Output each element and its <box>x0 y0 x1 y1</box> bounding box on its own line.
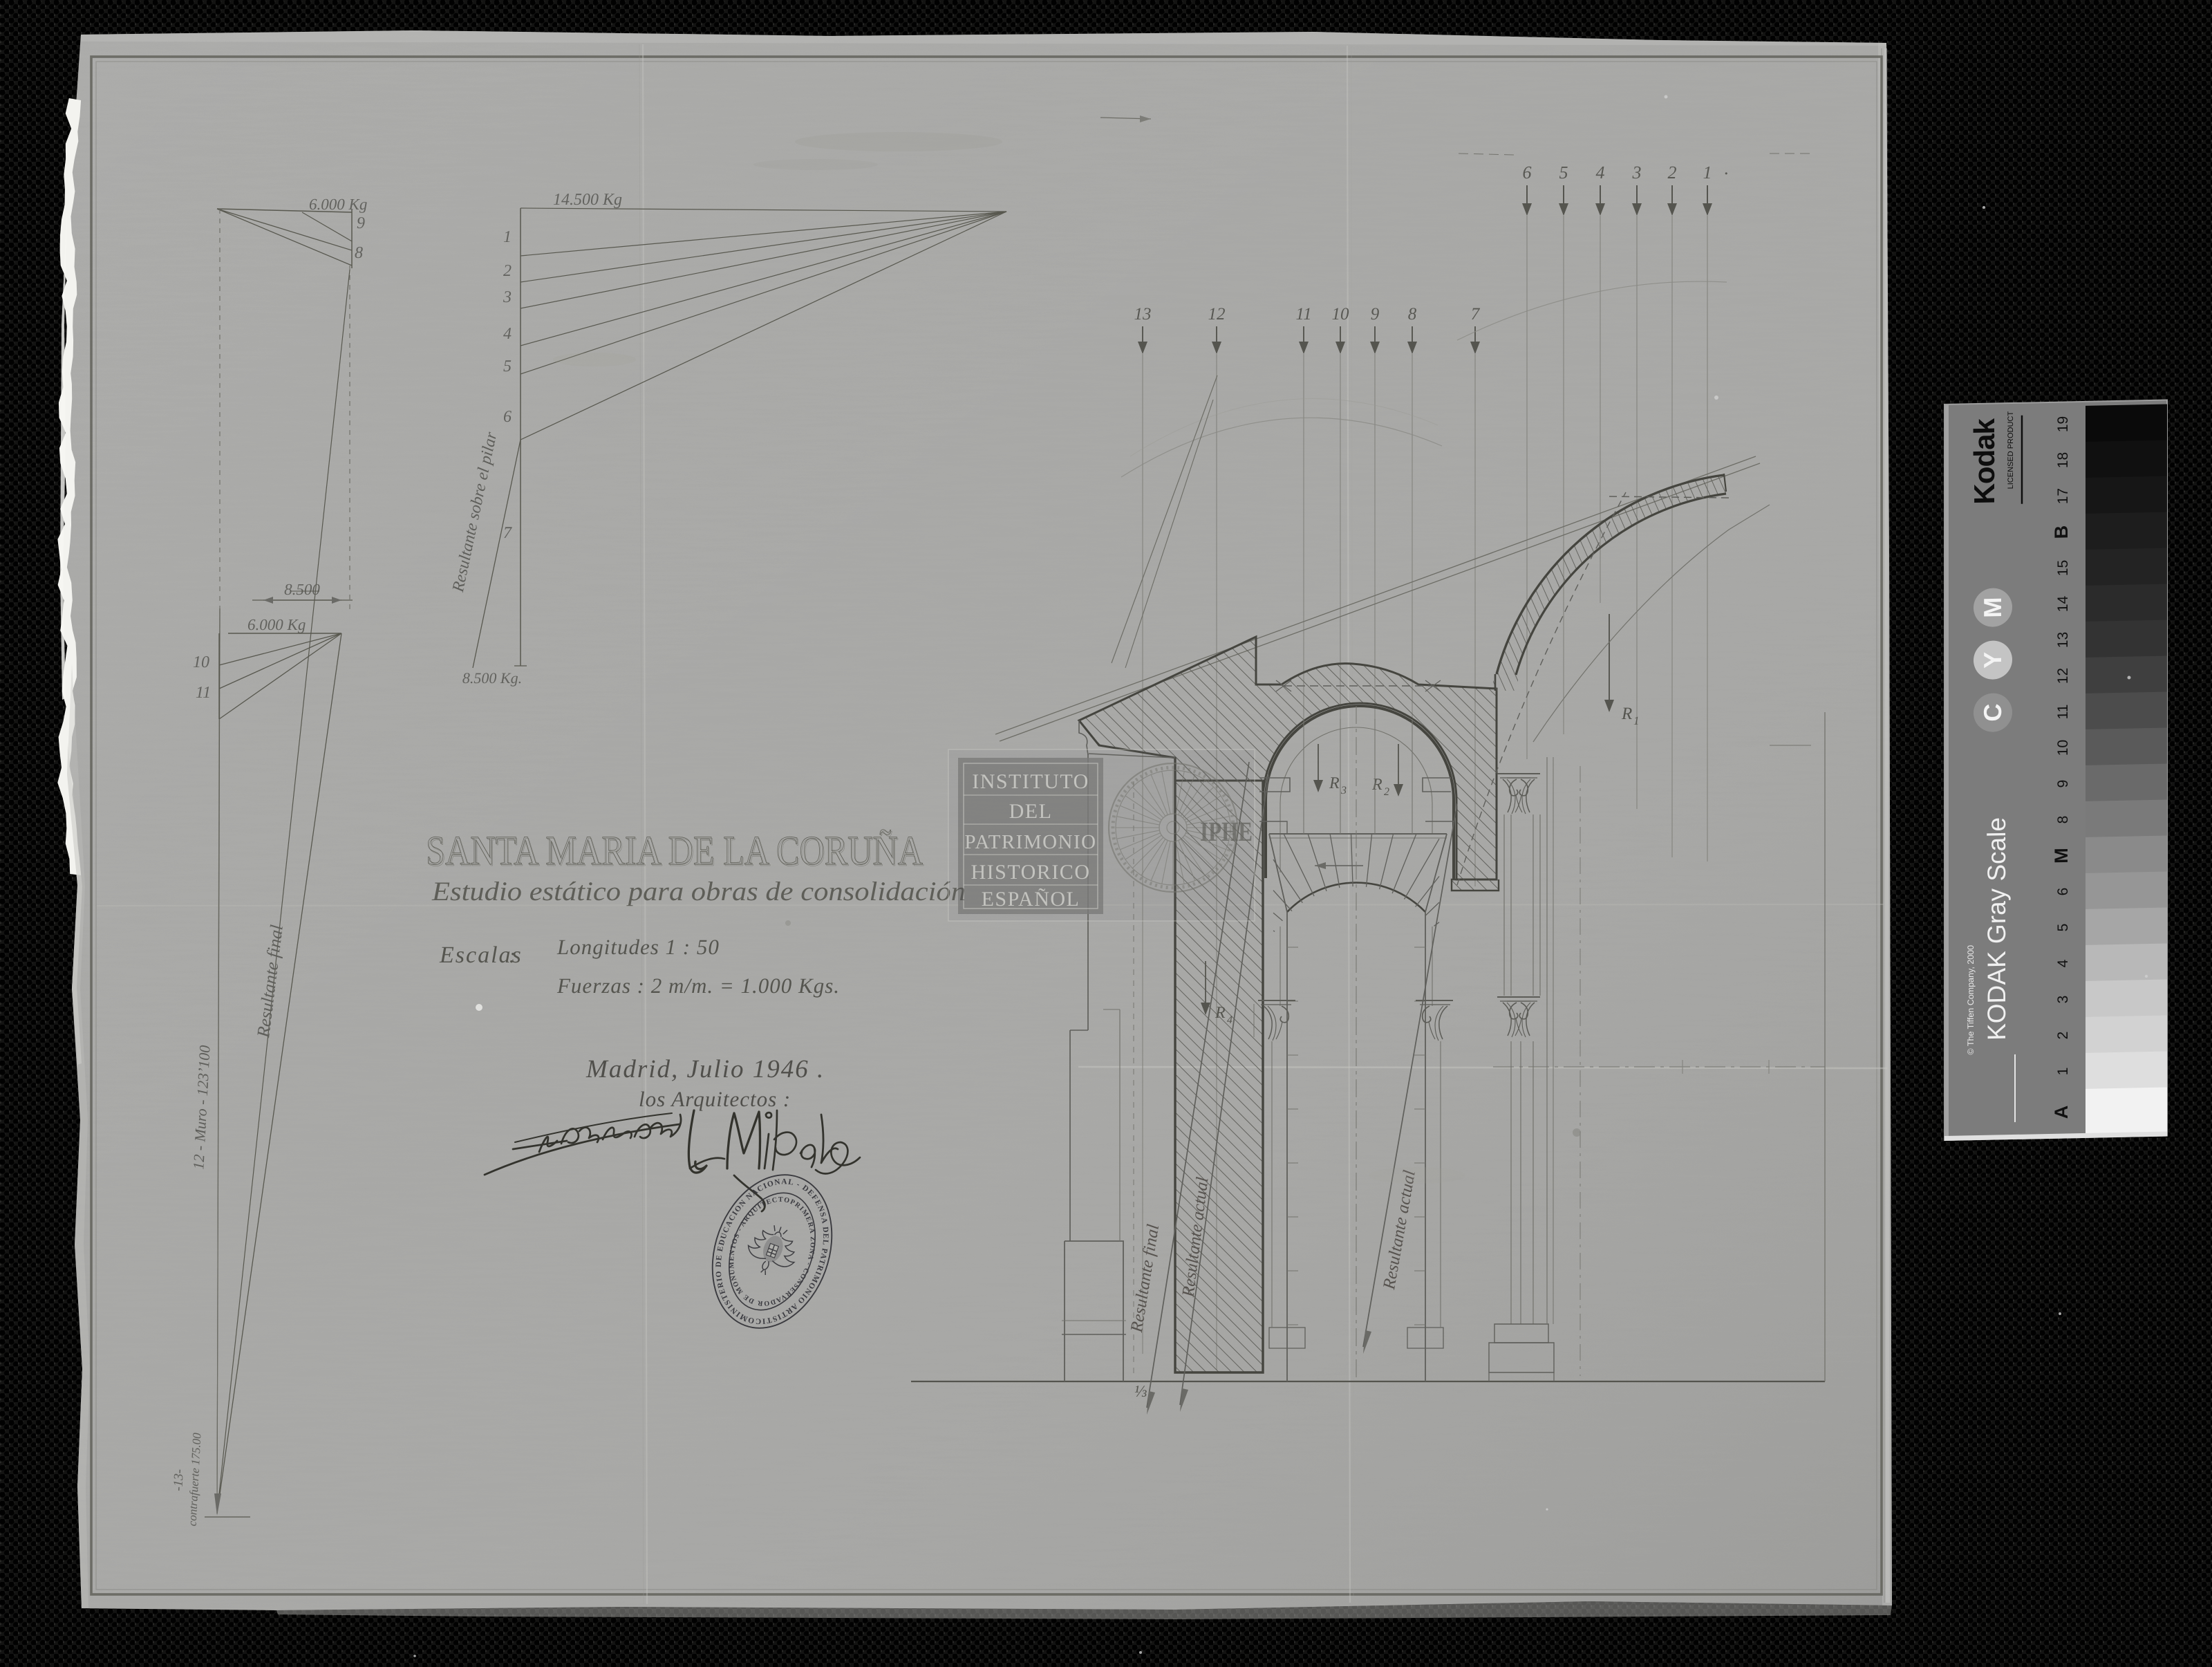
svg-text:R: R <box>1621 705 1632 723</box>
svg-text:9: 9 <box>357 214 365 232</box>
svg-text:7: 7 <box>1471 305 1481 324</box>
svg-text:7: 7 <box>503 524 512 542</box>
svg-text:12: 12 <box>1208 305 1226 324</box>
svg-text:13: 13 <box>2055 632 2071 649</box>
svg-text:2: 2 <box>1384 786 1389 798</box>
svg-text:Madrid, Julio 1946 .: Madrid, Julio 1946 . <box>585 1055 825 1083</box>
svg-text:13: 13 <box>1134 305 1152 324</box>
svg-text:R: R <box>1215 1004 1226 1022</box>
svg-text:Longitudes 1 : 50: Longitudes 1 : 50 <box>556 935 720 959</box>
svg-text:-13-: -13- <box>171 1469 187 1491</box>
svg-text:5: 5 <box>503 357 512 375</box>
svg-text:Estudio estático para obras de: Estudio estático para obras de consolida… <box>431 877 966 906</box>
svg-text:2: 2 <box>2055 1031 2071 1039</box>
svg-text:4: 4 <box>1227 1014 1232 1026</box>
svg-text:19: 19 <box>2055 416 2071 433</box>
svg-text:8: 8 <box>1408 305 1417 324</box>
svg-text:2: 2 <box>1668 162 1677 183</box>
svg-text:4: 4 <box>1596 162 1605 183</box>
svg-text:4: 4 <box>2055 959 2071 967</box>
svg-text:HISTORICO: HISTORICO <box>971 861 1091 884</box>
svg-text:14.500 Kg: 14.500 Kg <box>553 191 622 209</box>
svg-text:3: 3 <box>2055 995 2071 1003</box>
svg-text:12: 12 <box>2055 668 2071 685</box>
svg-text:IPHE: IPHE <box>1200 816 1253 847</box>
svg-text:⅓: ⅓ <box>1134 1383 1147 1401</box>
svg-text:5: 5 <box>1559 162 1568 183</box>
svg-text:11: 11 <box>1295 305 1311 324</box>
svg-text:5: 5 <box>2055 923 2071 931</box>
svg-text:los Arquitectos :: los Arquitectos : <box>639 1087 791 1111</box>
svg-text::: : <box>509 944 516 967</box>
svg-text:Y: Y <box>1978 651 2007 669</box>
svg-text:9: 9 <box>1371 305 1380 324</box>
svg-text:2: 2 <box>503 262 512 280</box>
svg-text:R: R <box>1371 776 1382 794</box>
svg-text:14: 14 <box>2055 595 2071 612</box>
svg-text:1: 1 <box>1703 162 1712 183</box>
svg-text:A: A <box>2051 1106 2072 1119</box>
svg-text:1: 1 <box>503 228 512 246</box>
svg-text:KODAK Gray Scale: KODAK Gray Scale <box>1983 817 2011 1041</box>
svg-text:B: B <box>2051 525 2072 539</box>
svg-text:10: 10 <box>1332 305 1350 324</box>
svg-text:8: 8 <box>2055 815 2071 823</box>
svg-text:15: 15 <box>2055 560 2071 577</box>
svg-text:10: 10 <box>2055 740 2071 756</box>
svg-text:M: M <box>1978 597 2007 618</box>
svg-text:SANTA MARIA DE LA CORUÑA: SANTA MARIA DE LA CORUÑA <box>427 829 924 875</box>
svg-text:LICENSED PRODUCT: LICENSED PRODUCT <box>2007 411 2015 489</box>
svg-text:© The Tiffen Company, 2000: © The Tiffen Company, 2000 <box>1966 945 1976 1055</box>
svg-text:6.000 Kg: 6.000 Kg <box>247 616 306 633</box>
svg-text:3: 3 <box>1632 162 1642 183</box>
svg-text:1: 1 <box>2055 1067 2071 1075</box>
svg-text:11: 11 <box>2055 704 2071 719</box>
svg-text:Fuerzas : 2 m/m. = 1.000 Kgs.: Fuerzas : 2 m/m. = 1.000 Kgs. <box>556 974 840 998</box>
svg-text:3: 3 <box>503 288 512 306</box>
svg-text:6.000 Kg: 6.000 Kg <box>309 196 367 213</box>
svg-text:9: 9 <box>2055 779 2071 788</box>
svg-text:DEL: DEL <box>1009 800 1053 823</box>
svg-text:8.500 Kg.: 8.500 Kg. <box>462 669 522 687</box>
svg-text:6: 6 <box>2055 887 2071 895</box>
svg-text:4: 4 <box>503 325 512 343</box>
svg-text:ESPAÑOL: ESPAÑOL <box>982 888 1080 911</box>
svg-text:11: 11 <box>196 684 211 702</box>
svg-text:8: 8 <box>355 244 363 262</box>
svg-text:R: R <box>1329 774 1340 792</box>
svg-text:PATRIMONIO: PATRIMONIO <box>964 831 1096 853</box>
svg-text:6: 6 <box>503 408 512 426</box>
svg-text:18: 18 <box>2055 452 2071 469</box>
svg-text:.: . <box>1724 158 1729 178</box>
svg-text:Kodak: Kodak <box>1968 418 2000 505</box>
svg-text:6: 6 <box>1523 162 1532 183</box>
svg-text:10: 10 <box>193 653 209 671</box>
svg-text:3: 3 <box>1340 785 1347 797</box>
svg-text:M: M <box>2051 848 2072 864</box>
svg-text:17: 17 <box>2055 488 2071 505</box>
svg-text:INSTITUTO: INSTITUTO <box>972 770 1089 793</box>
svg-text:1: 1 <box>1633 714 1640 727</box>
svg-text:C: C <box>1978 703 2007 722</box>
